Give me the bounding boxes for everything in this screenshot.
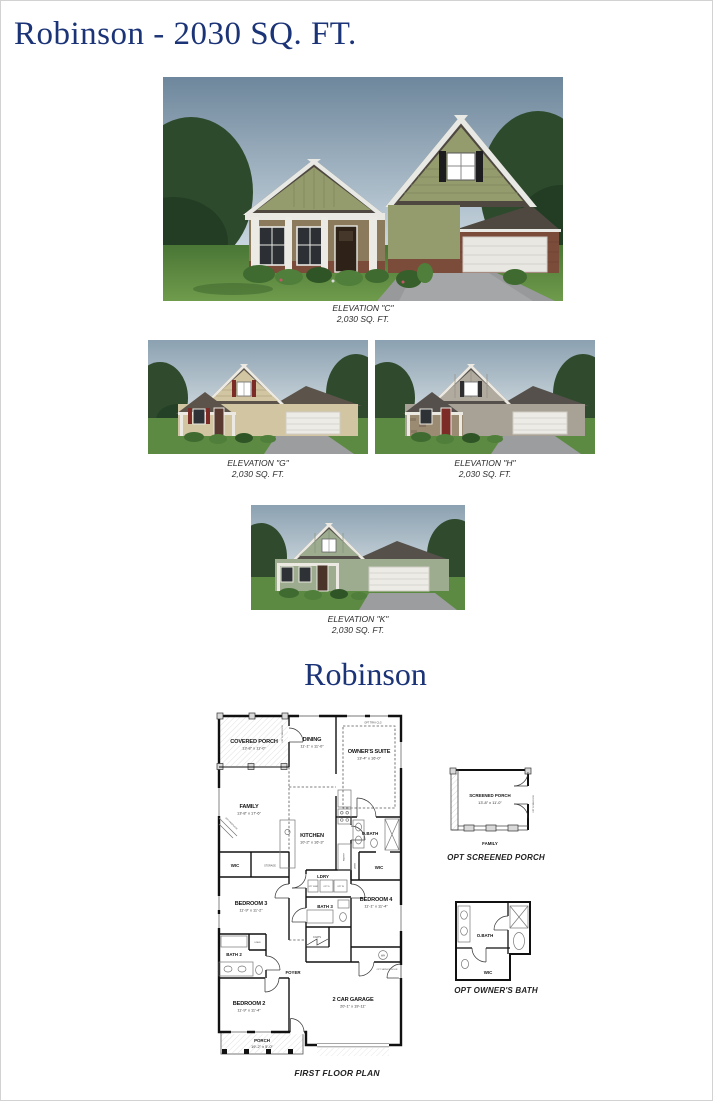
elevation-k-illustration [251,505,465,610]
elevation-c-rendering [163,77,563,301]
room-label-dining: DINING [303,737,322,743]
annotation-wh: WH [381,955,385,958]
room-label-storage: STORAGE [264,865,276,868]
first-floor-plan-caption: FIRST FLOOR PLAN [237,1068,437,1078]
first-floor-plan-drawing: COVERED PORCH 13'-8" x 11'-0" DINING 11'… [211,712,415,1069]
room-label-owners-suite: OWNER'S SUITE [348,749,391,755]
opt-screened-porch-family-label: FAMILY [482,841,498,846]
annotation-opt-scrn-door: OPT SCRN DOOR [282,725,284,743]
room-label-family: FAMILY [239,804,259,810]
room-label-bedroom4: BEDROOM 4 [360,897,394,903]
elevation-c-sqft: 2,030 SQ. FT. [163,314,563,325]
room-label-bath3: BATH 3 [317,904,333,909]
elevation-c-caption: ELEVATION "C" 2,030 SQ. FT. [163,303,563,326]
elevation-g-sqft: 2,030 SQ. FT. [148,469,368,480]
room-dims-bedroom4: 11'-1" x 11'-4" [364,904,388,909]
annotation-opt-w: OPT W [337,886,344,888]
room-label-covered-porch: COVERED PORCH [230,739,278,745]
room-label-wic-small: WIC [231,863,240,868]
room-label-coats: COATS [313,936,321,939]
elevation-k-label: ELEVATION "K" [251,614,465,625]
room-dims-family: 13'-8" x 17'-6" [237,811,262,816]
room-label-garage: 2 CAR GARAGE [332,997,374,1003]
room-label-ldry: LDRY [317,874,329,879]
room-label-pantry: PANTRY [343,852,346,861]
room-dims-bedroom3: 11'-9" x 11'-2" [239,908,263,913]
room-label-bath2: BATH 2 [226,952,242,957]
elevation-h-label: ELEVATION "H" [375,458,595,469]
room-label-bedroom2: BEDROOM 2 [233,1001,266,1007]
elevation-h-rendering [375,340,595,454]
opt-screened-porch-caption: OPT SCREENED PORCH [440,853,552,862]
room-dims-kitchen: 10'-2" x 16'-3" [300,840,325,845]
room-dims-covered-porch: 13'-8" x 11'-0" [242,746,266,751]
room-label-foyer: FOYER [285,970,301,975]
room-label-kitchen: KITCHEN [300,833,324,839]
room-dims-owners-suite: 13'-4" x 16'-0" [357,756,382,761]
room-label-linen2: LINEN [355,862,357,869]
opt-wic-label: WIC [484,970,493,975]
room-label-linen: LINEN [254,942,261,944]
elevation-c-illustration [163,77,563,301]
opt-screened-porch-label: SCREENED PORCH [469,793,510,798]
elevation-h-caption: ELEVATION "H" 2,030 SQ. FT. [375,458,595,481]
room-label-porch: PORCH [254,1038,270,1043]
room-dims-porch: 19'-2" x 5'-0" [251,1044,273,1049]
room-dims-bedroom2: 11'-9" x 11'-4" [237,1008,261,1013]
opt-scrn-door-note: OPT SCRN DOOR [533,795,535,813]
elevation-k-rendering [251,505,465,610]
opt-owners-bath-drawing: O.BATH WIC [452,896,536,991]
elevation-g-caption: ELEVATION "G" 2,030 SQ. FT. [148,458,368,481]
elevation-c-label: ELEVATION "C" [163,303,563,314]
elevation-h-illustration [375,340,595,454]
opt-obath-label: O.BATH [477,933,494,938]
opt-owners-bath-caption: OPT OWNER'S BATH [440,986,552,995]
annotation-opt-tray-clg: OPT TRAY CLG [364,722,381,725]
elevation-k-sqft: 2,030 SQ. FT. [251,625,465,636]
elevation-g-rendering [148,340,368,454]
room-dims-garage: 20'-1" x 19'-11" [340,1004,366,1009]
elevation-h-sqft: 2,030 SQ. FT. [375,469,595,480]
plan-title: Robinson [0,656,713,693]
elevation-g-illustration [148,340,368,454]
opt-porch-door-swings [514,772,528,818]
opt-screened-porch-drawing: SCREENED PORCH 13'-8" x 11'-0" FAMILY OP… [448,760,544,857]
page-title: Robinson - 2030 SQ. FT. [14,16,614,53]
room-dims-dining: 11'-1" x 11'-0" [300,744,324,749]
room-label-obath: O.BATH [362,831,379,836]
opt-screened-porch-dims: 13'-8" x 11'-0" [478,800,502,805]
annotation-opt-d: OPT D [323,886,330,888]
annotation-opt-sink: OPT SINK [308,886,318,888]
driveway-apron [317,1048,389,1056]
elevation-k-caption: ELEVATION "K" 2,030 SQ. FT. [251,614,465,637]
annotation-opt-service-door: OPT SERVICE DOOR [377,969,398,971]
room-label-wic-owner: WIC [375,865,384,870]
elevation-g-label: ELEVATION "G" [148,458,368,469]
room-label-bedroom3: BEDROOM 3 [235,901,268,907]
